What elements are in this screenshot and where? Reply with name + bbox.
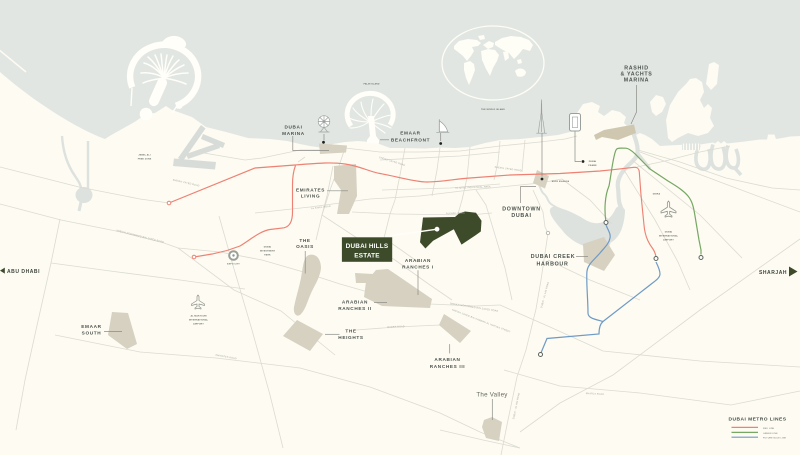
svg-text:SHARJAH: SHARJAH (759, 270, 787, 276)
svg-text:DUBAI CREEK: DUBAI CREEK (531, 254, 576, 260)
svg-text:DUBAI: DUBAI (589, 160, 597, 163)
svg-text:INTERNATIONAL: INTERNATIONAL (659, 235, 679, 238)
svg-text:DUBAI: DUBAI (511, 213, 531, 219)
svg-text:LIVING: LIVING (301, 194, 321, 199)
svg-text:ALKHAIL ROAD: ALKHAIL ROAD (446, 212, 465, 215)
svg-text:MARINA: MARINA (624, 78, 649, 84)
svg-text:GREEN LINE: GREEN LINE (763, 433, 778, 435)
svg-text:OASIS: OASIS (296, 244, 314, 249)
svg-text:FUTURE BLUE LINE: FUTURE BLUE LINE (763, 438, 786, 440)
svg-text:BEACHFRONT: BEACHFRONT (391, 138, 430, 143)
svg-text:ARABIAN: ARABIAN (434, 357, 460, 362)
svg-text:DEIRA: DEIRA (653, 193, 661, 196)
svg-text:The Valley: The Valley (476, 392, 508, 399)
svg-text:ARABIAN: ARABIAN (405, 258, 431, 263)
svg-text:EMAAR: EMAAR (400, 131, 420, 136)
svg-text:MARINA: MARINA (282, 131, 305, 136)
svg-text:RANCHES III: RANCHES III (430, 364, 466, 369)
svg-text:SOUTH: SOUTH (82, 330, 102, 335)
svg-text:THE: THE (345, 329, 356, 334)
svg-text:ABU DHABI: ABU DHABI (7, 269, 40, 275)
svg-text:PALM ISLAND: PALM ISLAND (363, 83, 379, 86)
svg-text:INTERNATIONAL: INTERNATIONAL (189, 319, 209, 322)
svg-text:EXPO CITY: EXPO CITY (227, 264, 240, 266)
svg-text:HEIGHTS: HEIGHTS (338, 335, 363, 340)
svg-text:AIRPORT: AIRPORT (663, 239, 674, 242)
svg-text:DOWNTOWN: DOWNTOWN (502, 207, 540, 213)
svg-text:JEBEL ALI: JEBEL ALI (138, 154, 150, 157)
svg-text:FREE ZONE: FREE ZONE (138, 159, 152, 161)
svg-text:ESTATE: ESTATE (354, 252, 380, 259)
svg-text:PARK: PARK (264, 254, 271, 257)
svg-text:AIRPORT: AIRPORT (193, 323, 204, 326)
svg-text:RED LINE: RED LINE (763, 428, 775, 430)
svg-text:INVESTMENT: INVESTMENT (260, 251, 276, 253)
svg-text:DUBAI: DUBAI (665, 231, 673, 234)
svg-text:QUDRA ROAD: QUDRA ROAD (387, 325, 405, 329)
svg-text:DUBAI HILLS: DUBAI HILLS (346, 243, 389, 250)
svg-text:THE: THE (299, 238, 310, 243)
svg-text:AL MAKTOUM: AL MAKTOUM (190, 315, 206, 318)
svg-text:EMAAR: EMAAR (81, 324, 101, 329)
svg-text:THE WORLD ISLAND: THE WORLD ISLAND (481, 108, 505, 111)
svg-text:DUBAI METRO LINES: DUBAI METRO LINES (729, 417, 787, 423)
svg-text:RASHID: RASHID (624, 65, 649, 71)
svg-text:HARBOUR: HARBOUR (537, 262, 569, 268)
svg-text:& YACHTS: & YACHTS (620, 71, 652, 77)
svg-text:ARABIAN: ARABIAN (342, 300, 368, 305)
svg-text:EMIRATES: EMIRATES (296, 188, 325, 193)
svg-text:BURJ KHALIFA: BURJ KHALIFA (552, 180, 570, 183)
svg-text:DUBAI: DUBAI (264, 246, 272, 249)
svg-text:FRAME: FRAME (588, 164, 597, 167)
svg-text:DUBAI: DUBAI (284, 125, 302, 130)
svg-text:RANCHES I: RANCHES I (402, 264, 434, 269)
svg-text:RANCHES II: RANCHES II (338, 306, 372, 311)
